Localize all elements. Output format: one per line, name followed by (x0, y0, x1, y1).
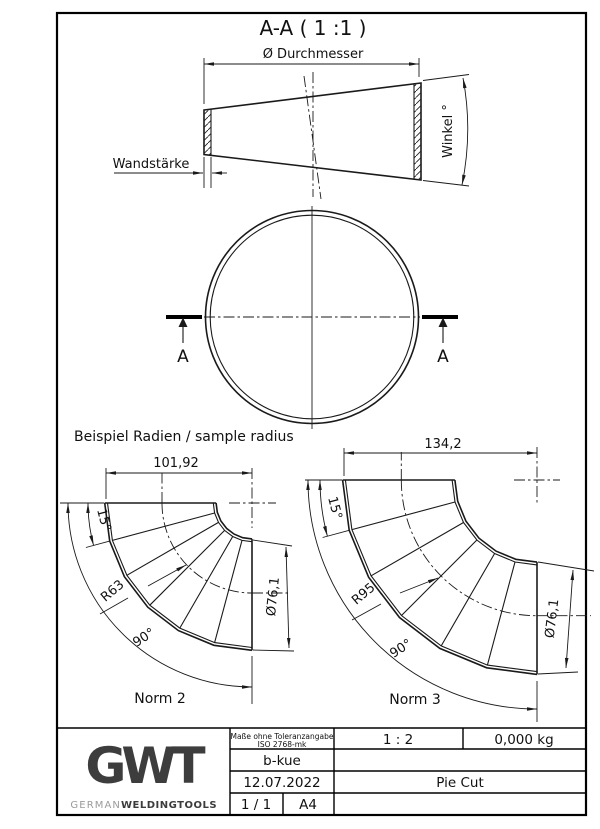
company-logo: GWT (85, 737, 205, 795)
angle-dim-arc (462, 78, 468, 185)
norm2-seg-angle-label: 15° (93, 507, 113, 533)
norm2-seg-angle-arc (88, 503, 94, 546)
norm2-radius-leader-2 (148, 565, 186, 586)
top-view-circle: A A (166, 206, 458, 429)
norm3-seg-angle-arc (320, 480, 327, 536)
angle-dim-label: Winkel ° (441, 104, 456, 158)
tolerance-note-line2: ISO 2768-mk (258, 740, 307, 749)
drawing-canvas: A-A ( 1 :1 ) Ø Durchmesser Wandstärke Wi… (0, 0, 600, 829)
section-title: A-A ( 1 :1 ) (260, 16, 367, 40)
scale-value: 1 : 2 (383, 732, 413, 748)
cone-wall-left-hatch (204, 110, 211, 155)
section-label-left: A (177, 347, 189, 367)
cone-outline (204, 83, 421, 180)
wall-dim-label: Wandstärke (113, 157, 190, 172)
norm2-dia-ext-bottom (253, 650, 294, 651)
norm2-total-angle-label: 90° (130, 625, 157, 650)
norm2-center-mark (229, 468, 276, 528)
author-value: b-kue (263, 753, 301, 769)
norm3-view: 134,2 R95 (305, 437, 594, 722)
brand-name-light: GERMAN (70, 800, 121, 811)
sheet-number: 1 / 1 (241, 797, 271, 813)
norm2-seg-ext-division (86, 541, 110, 547)
norm3-seg-angle-label: 15° (324, 495, 344, 521)
norm2-view: 101,92 R63 (60, 456, 294, 707)
norm2-dia-label: Ø76,1 (264, 576, 283, 617)
weight-value: 0,000 kg (494, 732, 553, 748)
drawing-title: Pie Cut (436, 775, 483, 791)
engineering-drawing-page: A-A ( 1 :1 ) Ø Durchmesser Wandstärke Wi… (0, 0, 600, 829)
cone-wall-right-hatch (414, 83, 421, 180)
norm3-dia-ext-bottom (538, 672, 578, 674)
norm2-dia-dim-line (286, 547, 289, 648)
date-value: 12.07.2022 (243, 775, 320, 791)
norm3-dia-label: Ø76,1 (543, 598, 563, 639)
section-label-right: A (437, 347, 449, 367)
norm2-dia-ext-top (253, 540, 292, 546)
title-block: GWT GERMAN WELDINGTOOLS Maße ohne Tolera… (57, 728, 586, 815)
norm2-width-dim: 101,92 (153, 456, 199, 471)
norm3-dia-dim-line (566, 570, 573, 668)
cone-centerline-tilted (304, 76, 321, 199)
diameter-dim-label: Ø Durchmesser (263, 47, 364, 62)
norm3-center-mark (514, 447, 560, 505)
paper-format: A4 (299, 797, 317, 813)
section-view-cone: A-A ( 1 :1 ) Ø Durchmesser Wandstärke Wi… (113, 16, 469, 199)
norm2-label: Norm 2 (134, 691, 186, 707)
norm3-total-angle-label: 90° (387, 636, 414, 661)
norm3-label: Norm 3 (389, 692, 441, 708)
norm3-radius-leader-2 (400, 578, 438, 593)
brand-name-bold: WELDINGTOOLS (121, 800, 217, 811)
sample-radius-heading: Beispiel Radien / sample radius (74, 429, 294, 445)
norm2-segment-lines (112, 513, 242, 643)
norm3-width-dim: 134,2 (424, 437, 461, 452)
angle-ext-top (423, 75, 469, 81)
